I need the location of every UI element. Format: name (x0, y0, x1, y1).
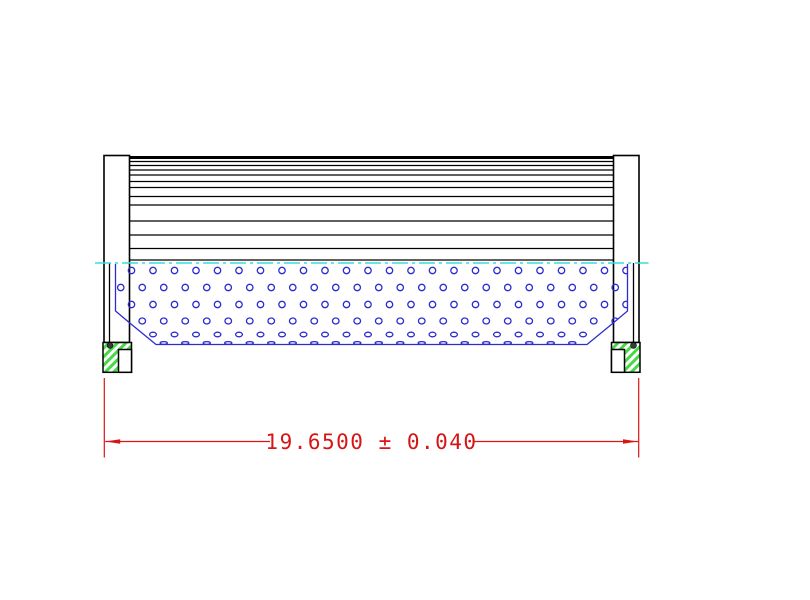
end-cap-right (614, 156, 640, 343)
dimension-line: 19.6500 ± 0.040 (104, 378, 638, 458)
core-perforations (85, 267, 629, 344)
seal-right (612, 343, 641, 373)
end-cap-left (104, 156, 130, 343)
core-tube (85, 264, 629, 345)
dimension-arrow-right (623, 439, 638, 444)
dimension-text: 19.6500 ± 0.040 (265, 430, 477, 454)
filter-drawing: 19.6500 ± 0.040 (0, 0, 810, 600)
o-ring-left (107, 343, 113, 349)
pleat-lines (130, 158, 614, 261)
o-ring-right (631, 343, 637, 349)
cad-viewport: 19.6500 ± 0.040 (0, 0, 810, 600)
dimension-arrow-left (105, 439, 120, 444)
seal-left (103, 343, 132, 373)
